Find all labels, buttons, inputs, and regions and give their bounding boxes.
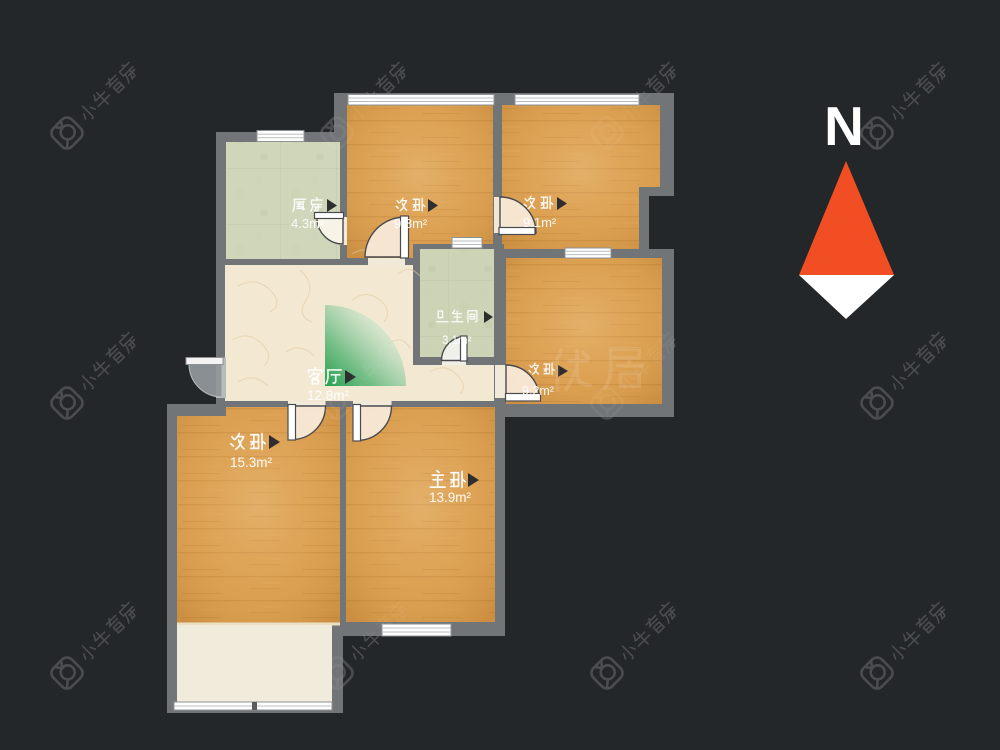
svg-text:N: N [824,95,864,157]
svg-text:9.8m²: 9.8m² [394,216,428,231]
svg-text:3.1m²: 3.1m² [442,335,472,347]
svg-text:9.1m²: 9.1m² [523,215,557,230]
svg-text:9.2m²: 9.2m² [522,384,554,398]
svg-text:13.9m²: 13.9m² [429,490,472,505]
svg-text:15.3m²: 15.3m² [230,455,273,470]
svg-text:4.3m²: 4.3m² [291,216,325,231]
